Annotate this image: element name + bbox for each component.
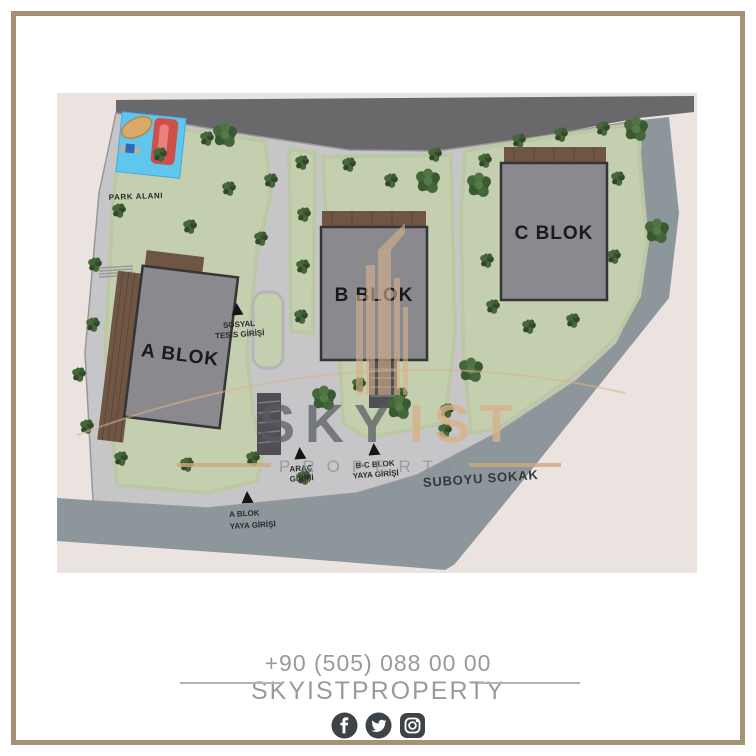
playground [114, 110, 186, 179]
block-a-building: A BLOK [97, 247, 240, 454]
facebook-icon[interactable] [331, 712, 358, 739]
watermark-brand-secondary: PROPERTY [279, 457, 468, 476]
watermark-line-right [469, 463, 561, 467]
twitter-icon[interactable] [365, 712, 392, 739]
page: A BLOK B BLOK [0, 0, 756, 756]
block-c-building: C BLOK [501, 147, 607, 300]
site-plan-drawing: A BLOK B BLOK [57, 93, 697, 573]
watermark-line-left [177, 463, 271, 467]
watermark-brand-accent: IST [409, 394, 523, 454]
site-plan: A BLOK B BLOK [57, 93, 697, 573]
instagram-icon[interactable] [399, 712, 426, 739]
phone-number: +90 (505) 088 00 00 [0, 650, 756, 676]
social-links [0, 712, 756, 739]
watermark-brand-primary: SKY [259, 394, 400, 454]
block-c-label: C BLOK [515, 223, 594, 244]
footer-divider-left [180, 682, 282, 684]
park-area-label: PARK ALANI [109, 191, 164, 202]
footer-brand: SKYISTPROPERTY [0, 678, 756, 705]
footer-divider-right [478, 682, 580, 684]
svg-text:A BLOK: A BLOK [229, 508, 260, 519]
footer: +90 (505) 088 00 00 SKYISTPROPERTY [0, 650, 756, 739]
